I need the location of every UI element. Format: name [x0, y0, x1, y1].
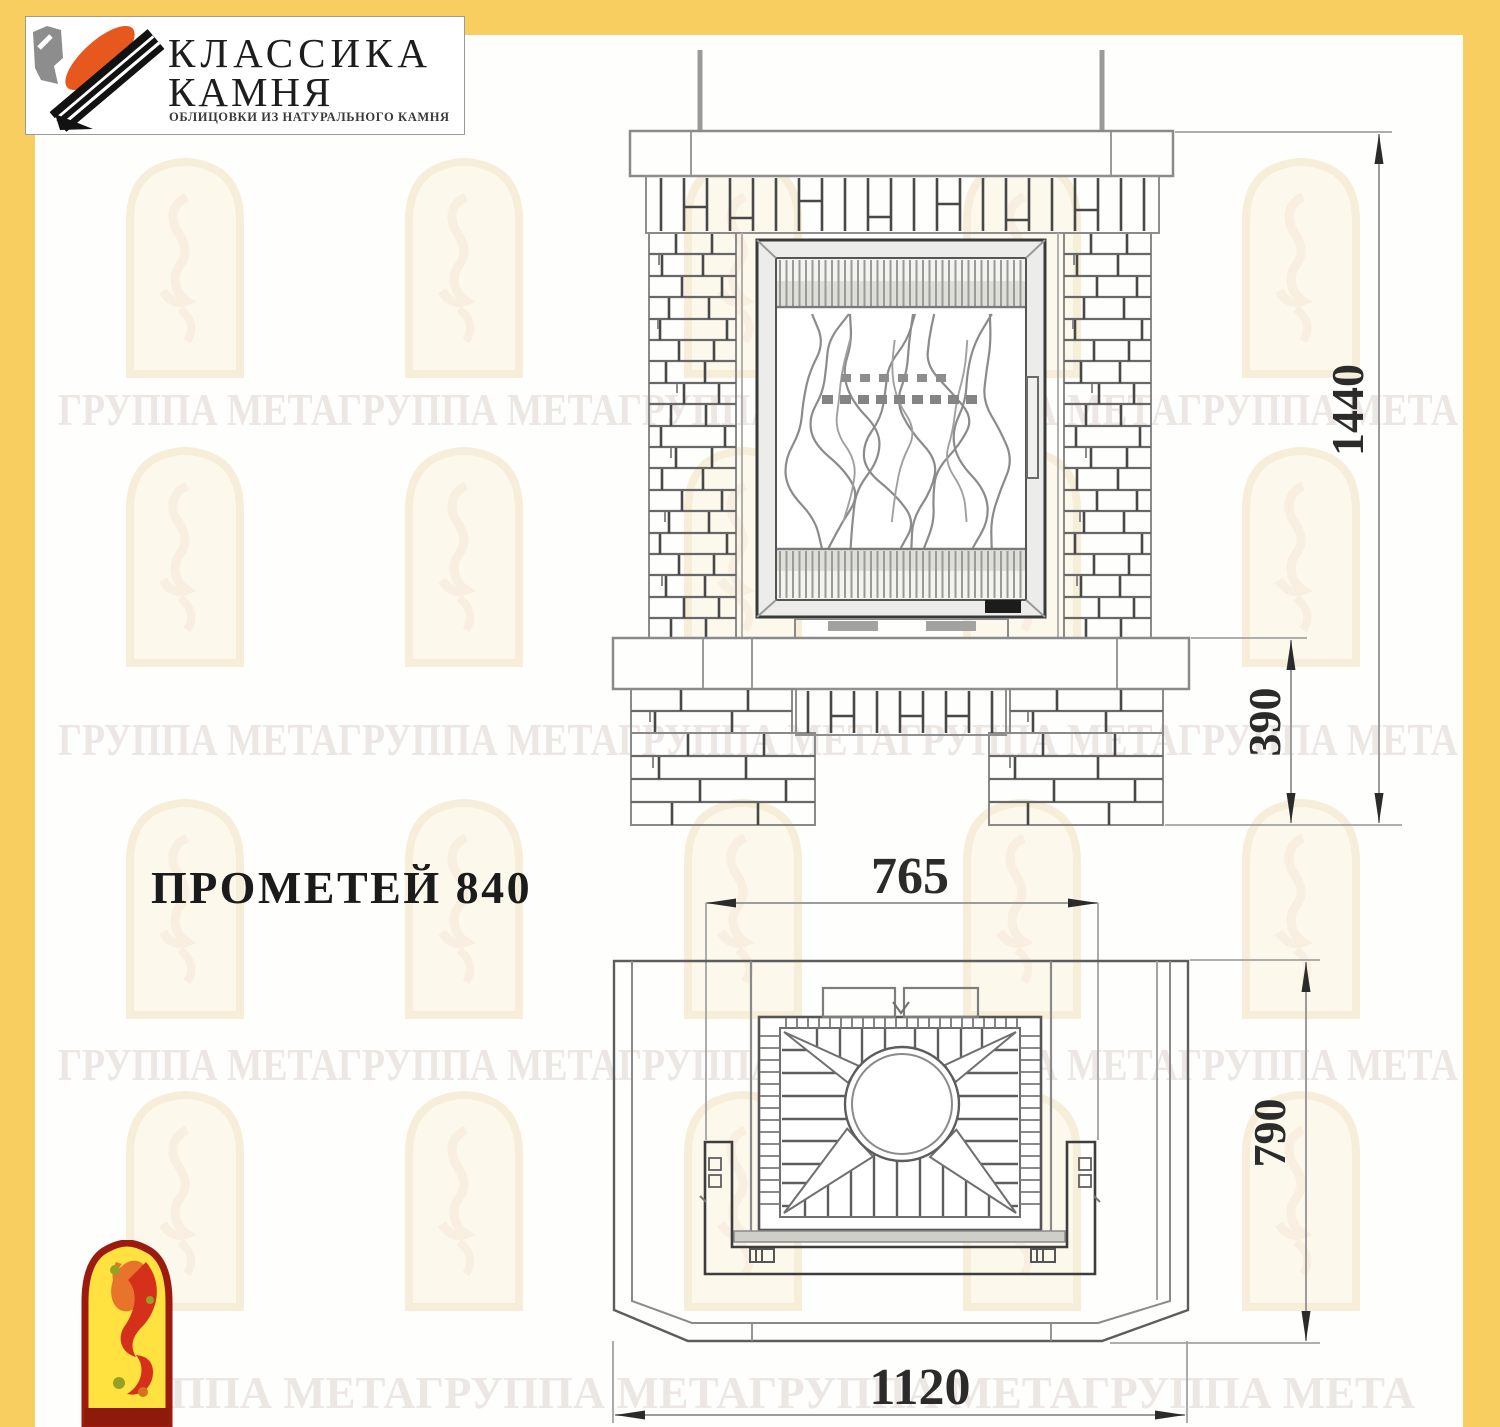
svg-text:1120: 1120 — [869, 1359, 970, 1416]
svg-text:765: 765 — [871, 848, 949, 905]
svg-text:390: 390 — [1239, 688, 1290, 757]
svg-text:1440: 1440 — [1322, 364, 1373, 456]
svg-text:790: 790 — [1244, 1099, 1295, 1168]
